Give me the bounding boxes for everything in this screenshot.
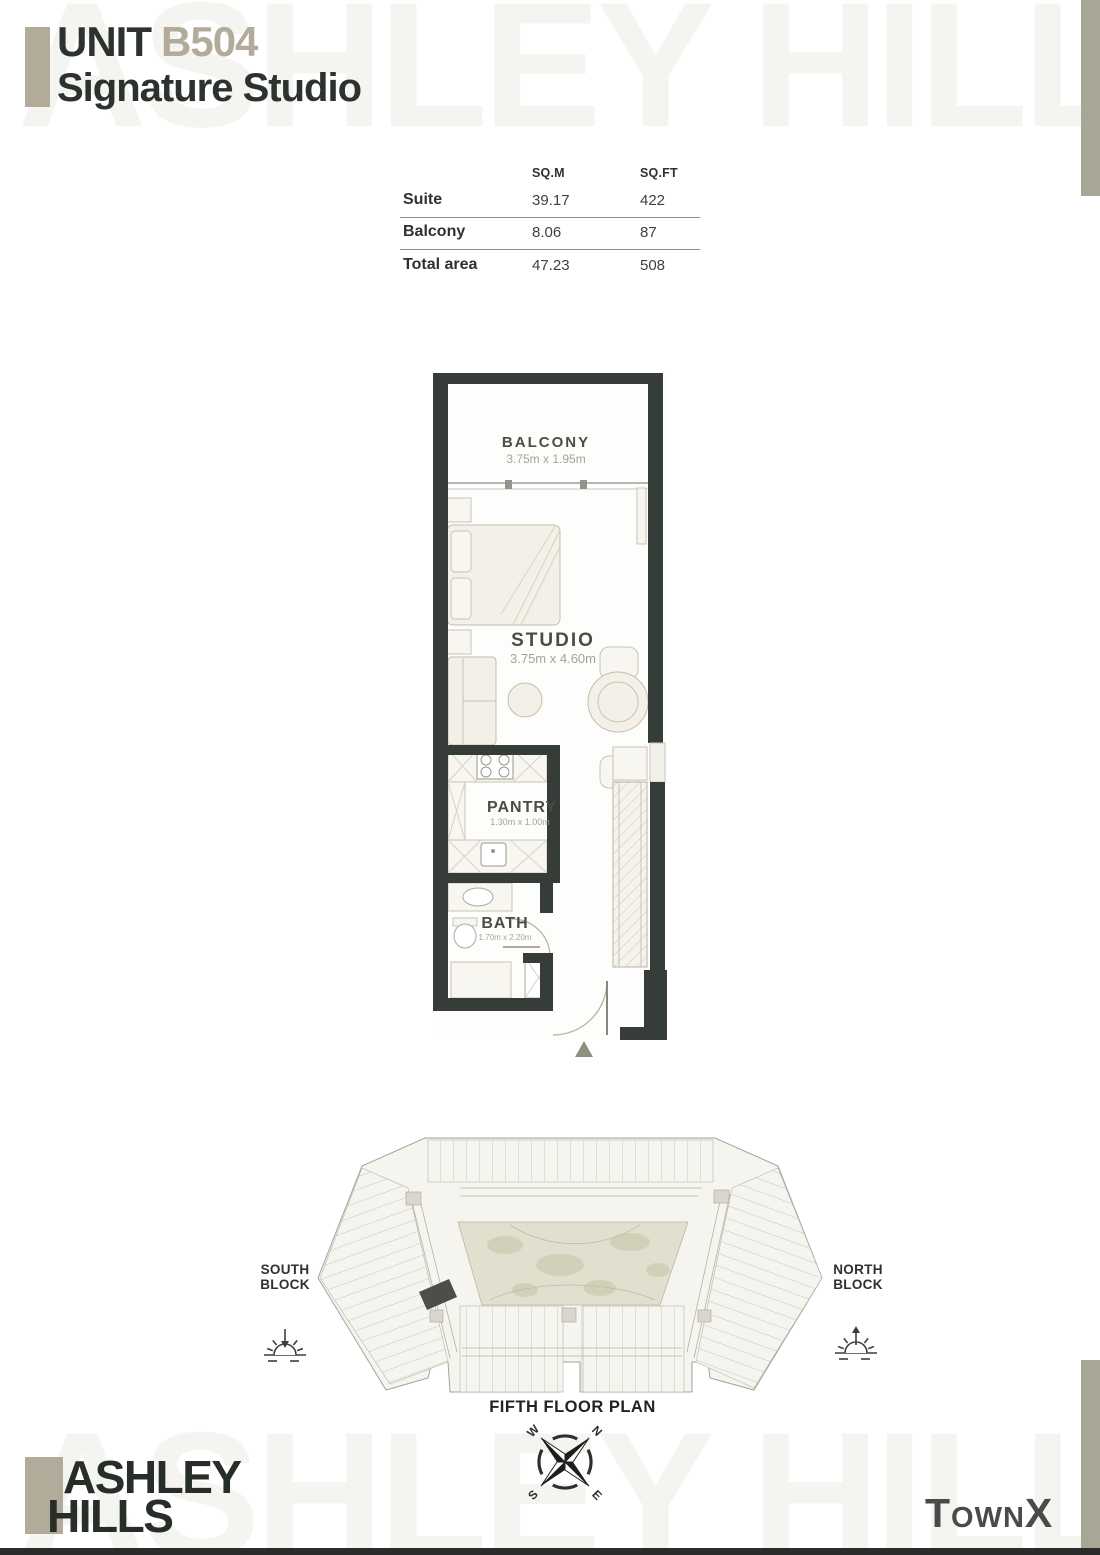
sofa-icon: [448, 657, 496, 745]
south-units-band-right: [582, 1306, 684, 1392]
table-divider: [400, 217, 700, 218]
unit-floor-plan: BALCONY 3.75m x 1.95m STUDIO 3.75m x 4.6…: [415, 362, 735, 1062]
bath-dimensions: 1.70m x 2.20m: [479, 933, 532, 942]
bottom-edge-strip: [0, 1548, 1100, 1555]
townx-logo: TownX: [925, 1490, 1053, 1537]
compass-rose-icon: W N S E: [520, 1417, 610, 1507]
compass-star: [541, 1438, 589, 1486]
studio-dimensions: 3.75m x 4.60m: [510, 651, 596, 666]
bed-icon: [447, 525, 560, 625]
column-header-sqm: SQ.M: [532, 166, 565, 180]
table-divider: [400, 249, 700, 250]
pouf-icon: [508, 683, 542, 717]
north-block-label: NORTH BLOCK: [818, 1262, 898, 1292]
row-label-total: Total area: [403, 256, 477, 274]
floor-plan-caption: FIFTH FLOOR PLAN: [440, 1398, 705, 1417]
entry-marker-icon: [575, 1041, 593, 1057]
compass-south: S: [525, 1487, 541, 1503]
total-sqft: 508: [640, 257, 665, 274]
compass-west: W: [524, 1422, 542, 1440]
balcony-label: BALCONY: [502, 434, 590, 451]
south-units-band-left: [460, 1306, 563, 1392]
suite-sqft: 422: [640, 192, 665, 209]
bath-label: BATH: [481, 915, 528, 932]
right-edge-accent-bar-top: [1081, 0, 1100, 196]
unit-subtitle: Signature Studio: [57, 66, 361, 111]
column-header-sqft: SQ.FT: [640, 166, 678, 180]
page-title: UNITB504: [57, 18, 257, 66]
wardrobe-icon: [613, 747, 647, 967]
brand-line2: HILLS: [47, 1489, 172, 1543]
compass-north: N: [589, 1423, 605, 1439]
south-block-label: SOUTH BLOCK: [245, 1262, 325, 1292]
key-plan: [310, 1130, 830, 1400]
tv-unit-icon: [637, 488, 646, 544]
balcony-sqft: 87: [640, 224, 657, 241]
right-edge-accent-bar-bottom: [1081, 1360, 1100, 1555]
pantry-label: PANTRY: [487, 799, 557, 816]
balcony-dimensions: 3.75m x 1.95m: [506, 452, 585, 466]
balcony-sqm: 8.06: [532, 224, 561, 241]
header-accent-bar: [25, 27, 50, 107]
total-sqm: 47.23: [532, 257, 570, 274]
sunrise-north-icon: [833, 1323, 879, 1365]
sunset-south-icon: [262, 1325, 308, 1367]
suite-sqm: 39.17: [532, 192, 570, 209]
unit-label: UNIT: [57, 18, 151, 65]
studio-label: STUDIO: [511, 630, 595, 651]
pantry-dimensions: 1.30m x 1.00m: [490, 817, 550, 827]
nightstand-icon: [447, 630, 471, 654]
north-units-band: [428, 1140, 713, 1182]
unit-number: B504: [161, 18, 257, 65]
brochure-page: ASHLEY HILLS ASHLEY HILLS UNITB504 Signa…: [0, 0, 1100, 1555]
nightstand-icon: [447, 498, 471, 522]
row-label-balcony: Balcony: [403, 223, 465, 241]
row-label-suite: Suite: [403, 191, 442, 209]
compass-east: E: [589, 1487, 605, 1503]
